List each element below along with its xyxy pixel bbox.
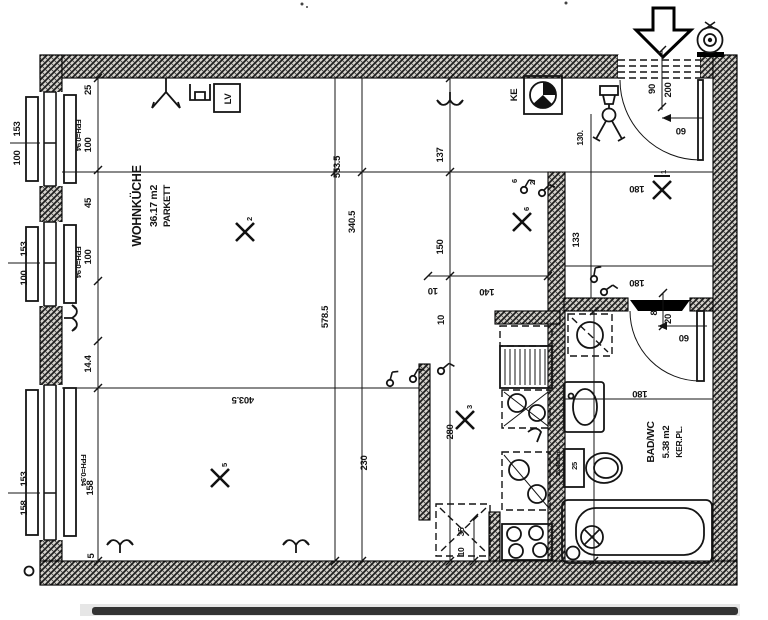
dim-label: 20 bbox=[663, 314, 674, 324]
dim-label: 230 bbox=[359, 456, 370, 471]
dimension-labels-flipped: 140 10 403.5 60 60 180 180 180 bbox=[231, 125, 689, 405]
radiators bbox=[64, 305, 309, 553]
dim-label: 403.5 bbox=[231, 394, 254, 405]
marker-number: 5 bbox=[220, 463, 229, 467]
fixture-trident bbox=[152, 78, 180, 108]
dim-label: 45 bbox=[83, 197, 94, 208]
window-sill-label: FPH=0.94 bbox=[74, 119, 83, 152]
wall-top bbox=[40, 55, 618, 78]
marker-x3: 3 bbox=[456, 405, 474, 429]
shaft-label: 25x40/1cm bbox=[556, 450, 562, 476]
dimension-labels-left-chain: 25 100 45 100 14.4 158 5 bbox=[83, 84, 97, 558]
dim-label: 8 bbox=[649, 310, 660, 315]
lv-label: LV bbox=[223, 93, 234, 105]
marker-x2: 2 bbox=[236, 217, 254, 241]
dim-label: 10 bbox=[456, 547, 466, 556]
marker-x1: 1 bbox=[653, 170, 671, 199]
dim-label: 133 bbox=[571, 233, 582, 248]
dim-label: 200 bbox=[663, 83, 674, 98]
fixture-bracket bbox=[190, 84, 210, 100]
floor-plan-drawing: 1 2 3 5 6 WOHNKÜCHE 36.17 m2 PARKETT BAD… bbox=[0, 0, 768, 620]
ke-label: KE bbox=[509, 89, 520, 102]
wall-bottom bbox=[40, 561, 737, 585]
marker-number: 2 bbox=[245, 217, 254, 221]
dim-label: 10 bbox=[428, 285, 438, 296]
marker-number: 3 bbox=[465, 405, 474, 409]
dim-label: 25 bbox=[83, 84, 94, 95]
dim-label: 35 bbox=[456, 527, 466, 536]
dim-label: 340.5 bbox=[347, 210, 358, 233]
equipment-labels: KE LV FPH=0.94 FPH=0.94 FPH=0.94 25x40/1… bbox=[74, 89, 579, 487]
window-2 bbox=[8, 222, 76, 306]
marker-number: 1 bbox=[659, 170, 668, 174]
dim-label: 158 bbox=[85, 481, 96, 496]
dim-label: 180 bbox=[630, 277, 645, 288]
room-name-wohnkueche: WOHNKÜCHE bbox=[129, 165, 144, 246]
room-name-bad: BAD/WC bbox=[645, 421, 657, 463]
bath-door-threshold bbox=[630, 300, 690, 311]
kitchen-sink bbox=[502, 452, 550, 510]
dim-label: 578.5 bbox=[320, 305, 331, 328]
dim-label: 5 bbox=[86, 552, 97, 558]
hob bbox=[502, 390, 550, 428]
room-finish-wohnkueche: PARKETT bbox=[162, 184, 173, 227]
dim-label: 100 bbox=[83, 250, 94, 265]
dim-label: 158 bbox=[19, 501, 30, 516]
entrance-door-swing bbox=[620, 80, 700, 160]
floor-plan-scan: 1 2 3 5 6 WOHNKÜCHE 36.17 m2 PARKETT BAD… bbox=[0, 0, 768, 620]
dim-label: 130. bbox=[575, 130, 585, 145]
marker-x6: 6 bbox=[513, 207, 531, 231]
cooktop-niche bbox=[502, 524, 552, 560]
wall-kitchen-stub bbox=[495, 311, 560, 324]
washing-machine bbox=[568, 314, 612, 356]
marker-number: 6 bbox=[522, 207, 531, 211]
dim-label: 100 bbox=[19, 271, 30, 286]
switch-number: 6 bbox=[510, 179, 519, 183]
ke-unit bbox=[524, 76, 562, 114]
bathroom bbox=[562, 314, 712, 563]
dim-label: 153 bbox=[19, 472, 30, 487]
wall-right bbox=[713, 55, 737, 585]
switch-number: 2 bbox=[528, 181, 537, 185]
ceiling-fixtures bbox=[152, 76, 625, 141]
window-3 bbox=[8, 385, 76, 540]
interior-walls bbox=[419, 172, 713, 561]
dim-label: 140 bbox=[480, 286, 495, 297]
dim-label: 153 bbox=[12, 122, 23, 137]
dim-label: 150 bbox=[435, 240, 446, 255]
marker-x5: 5 bbox=[211, 463, 229, 487]
dim-label: 60 bbox=[679, 332, 689, 343]
bath-sink bbox=[564, 382, 604, 432]
dim-label: 90 bbox=[647, 84, 658, 94]
dim-label: 10 bbox=[436, 315, 447, 325]
dim-label: 60 bbox=[676, 125, 686, 136]
exterior-walls bbox=[40, 55, 737, 585]
dim-label: 100 bbox=[12, 151, 23, 166]
room-labels: WOHNKÜCHE 36.17 m2 PARKETT BAD/WC 5.38 m… bbox=[129, 165, 684, 462]
faucet-icon bbox=[528, 429, 541, 443]
dim-label: 14.4 bbox=[83, 354, 94, 372]
dim-label: 137 bbox=[435, 148, 446, 163]
dim-label: 153 bbox=[19, 242, 30, 257]
room-area-bad: 5.38 m2 bbox=[661, 426, 672, 459]
room-area-wohnkueche: 36.17 m2 bbox=[148, 185, 160, 227]
dim-label: 553.5 bbox=[332, 155, 343, 178]
corner-point-icon bbox=[25, 567, 34, 576]
dishwasher bbox=[500, 346, 552, 388]
dim-label: 180 bbox=[633, 388, 648, 399]
pendant-fixture bbox=[593, 86, 625, 141]
entrance-arrow-icon bbox=[636, 8, 691, 57]
dim-label: 280 bbox=[445, 425, 456, 440]
survey-point-icon bbox=[697, 22, 724, 57]
upper-cabinet bbox=[500, 326, 552, 346]
bathtub bbox=[562, 500, 712, 563]
dim-label: 180 bbox=[630, 183, 645, 194]
dim-label: 100 bbox=[83, 138, 94, 153]
wc-width-label: 25 bbox=[570, 462, 579, 470]
room-finish-bad: KER.PL. bbox=[674, 426, 684, 457]
wall-plumbing bbox=[419, 364, 430, 520]
window-sill-label: FPH=0.94 bbox=[74, 246, 83, 279]
wall-hall-bath-right bbox=[690, 298, 713, 311]
